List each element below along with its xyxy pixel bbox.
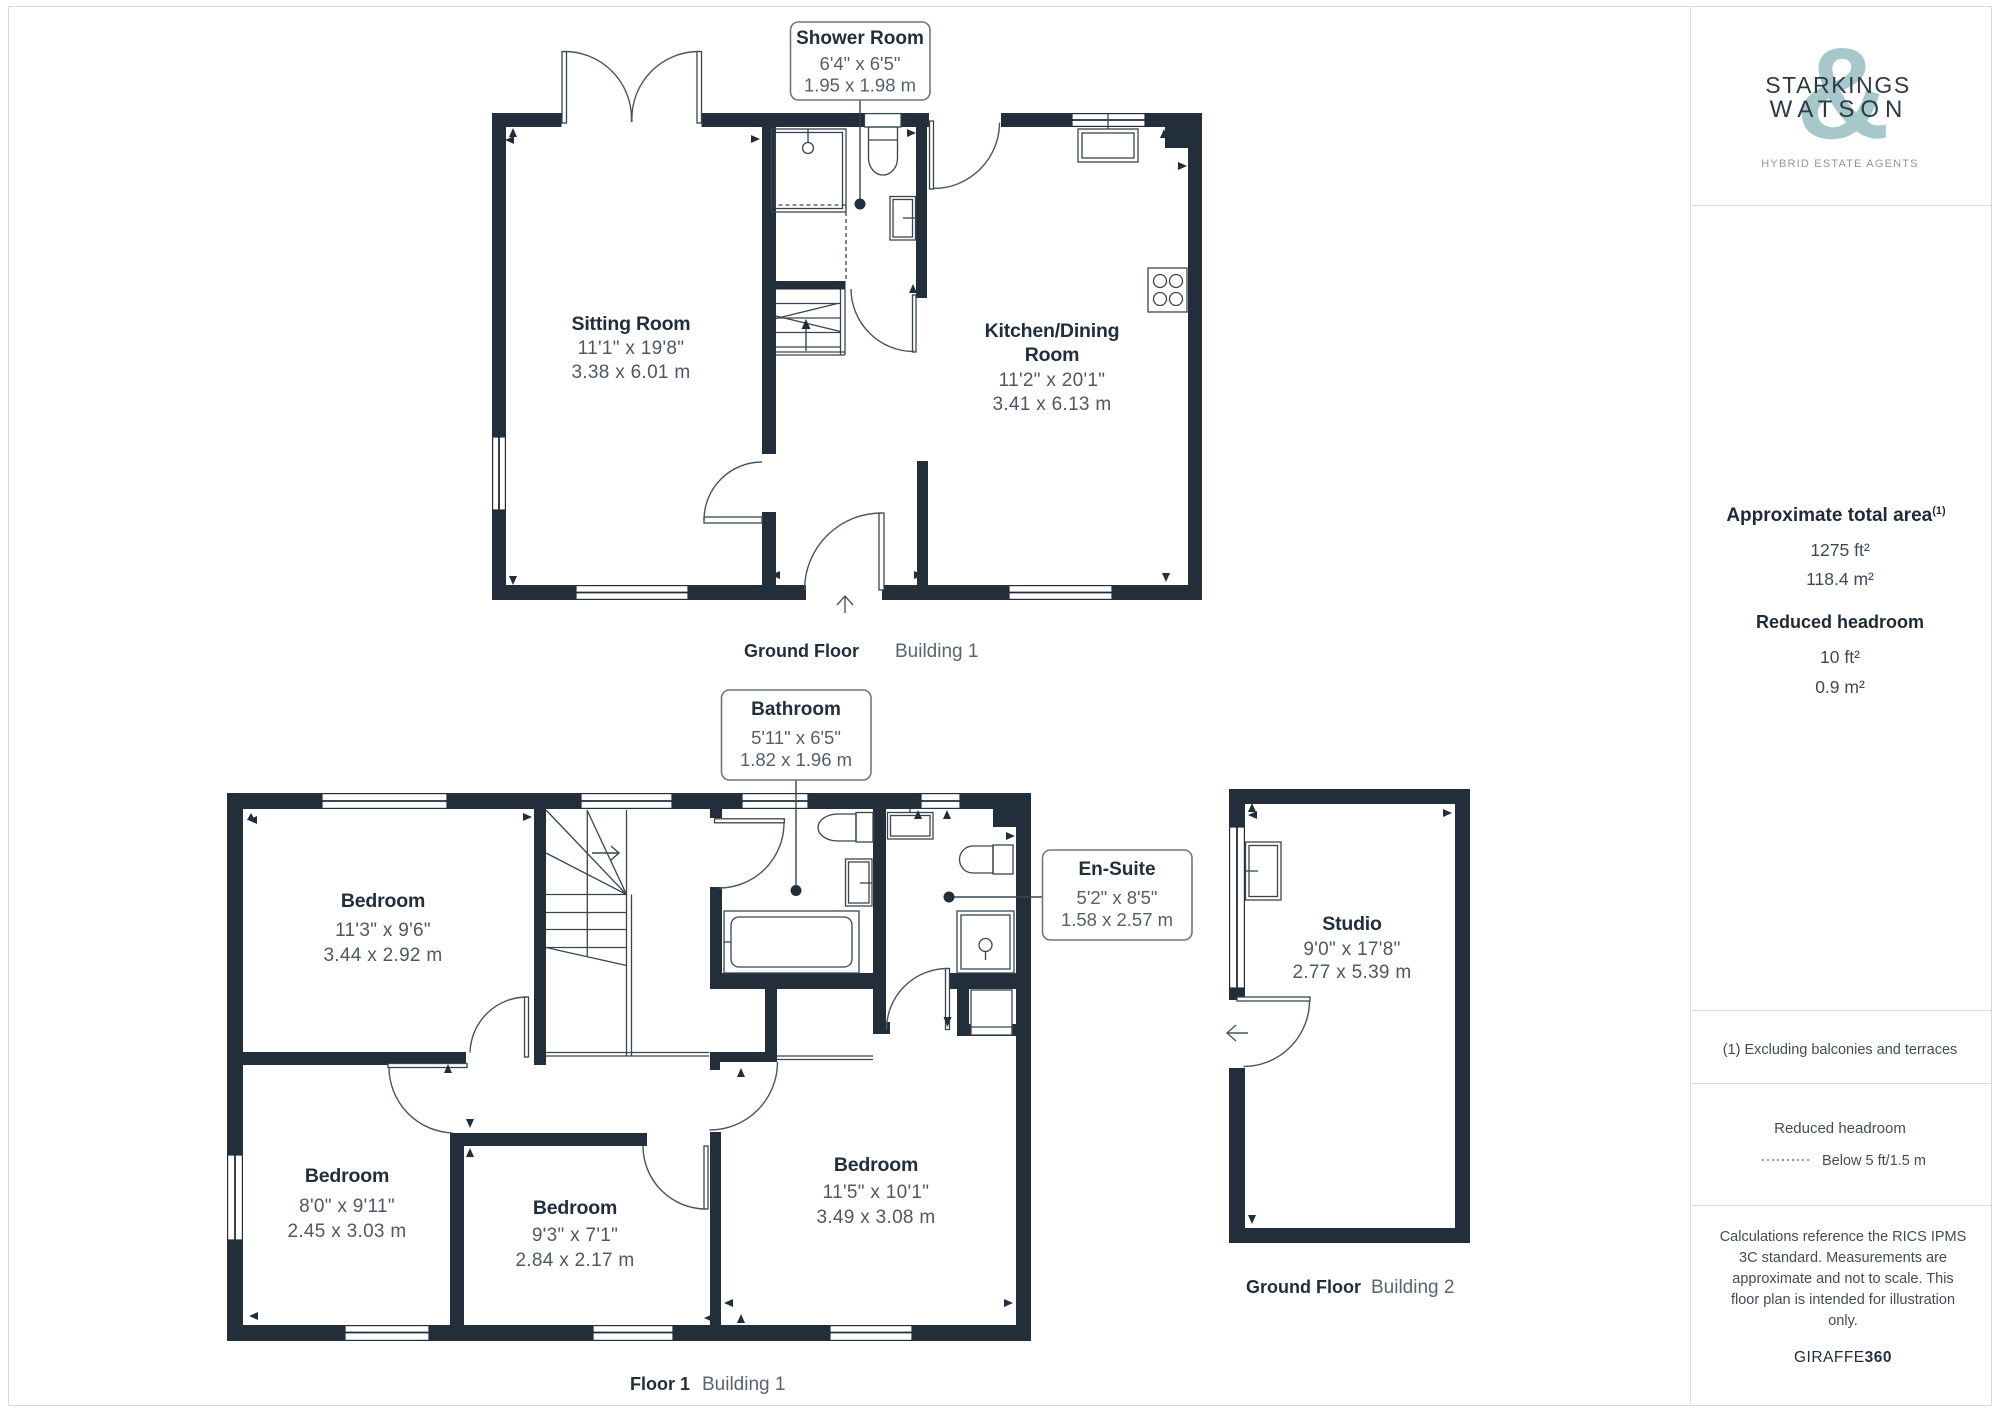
svg-text:Bathroom: Bathroom	[751, 699, 841, 720]
svg-text:Reduced headroom: Reduced headroom	[1756, 612, 1924, 632]
svg-text:3.49 x 3.08 m: 3.49 x 3.08 m	[816, 1207, 935, 1228]
svg-text:Approximate total area(1): Approximate total area(1)	[1726, 505, 1946, 526]
svg-text:2.84 x 2.17 m: 2.84 x 2.17 m	[515, 1250, 634, 1271]
svg-text:HYBRID ESTATE AGENTS: HYBRID ESTATE AGENTS	[1761, 158, 1918, 170]
svg-text:3.38 x 6.01 m: 3.38 x 6.01 m	[571, 362, 690, 383]
svg-text:Reduced headroom: Reduced headroom	[1774, 1120, 1906, 1137]
svg-text:11'3" x 9'6": 11'3" x 9'6"	[335, 920, 431, 941]
svg-text:10 ft²: 10 ft²	[1820, 647, 1860, 667]
svg-text:Bedroom: Bedroom	[533, 1197, 617, 1219]
svg-text:GIRAFFE360: GIRAFFE360	[1794, 1349, 1892, 1366]
svg-text:1.82 x 1.96 m: 1.82 x 1.96 m	[740, 749, 852, 770]
svg-text:0.9 m²: 0.9 m²	[1815, 677, 1865, 697]
svg-text:11'2" x 20'1": 11'2" x 20'1"	[999, 370, 1106, 391]
svg-text:En-Suite: En-Suite	[1078, 859, 1155, 880]
svg-text:118.4 m²: 118.4 m²	[1806, 569, 1874, 589]
svg-text:STARKINGS: STARKINGS	[1765, 72, 1911, 98]
svg-text:Building 1: Building 1	[702, 1374, 785, 1395]
svg-text:Floor 1: Floor 1	[630, 1374, 690, 1394]
svg-text:5'11" x 6'5": 5'11" x 6'5"	[751, 727, 841, 748]
svg-text:1275 ft²: 1275 ft²	[1810, 540, 1870, 560]
svg-text:1.95 x 1.98 m: 1.95 x 1.98 m	[804, 75, 916, 96]
svg-text:Kitchen/Dining: Kitchen/Dining	[985, 320, 1120, 342]
svg-text:floor plan is intended for ill: floor plan is intended for illustration	[1731, 1292, 1955, 1308]
svg-text:9'0" x 17'8": 9'0" x 17'8"	[1303, 939, 1400, 960]
svg-text:Bedroom: Bedroom	[305, 1165, 389, 1187]
svg-text:11'5" x 10'1": 11'5" x 10'1"	[823, 1182, 930, 1203]
svg-text:9'3" x 7'1": 9'3" x 7'1"	[532, 1225, 618, 1246]
svg-text:Building 2: Building 2	[1371, 1277, 1454, 1298]
svg-text:Calculations reference the RIC: Calculations reference the RICS IPMS	[1720, 1229, 1967, 1245]
svg-text:Bedroom: Bedroom	[834, 1154, 918, 1176]
svg-text:3C standard. Measurements are: 3C standard. Measurements are	[1739, 1250, 1947, 1266]
svg-text:3.41 x 6.13 m: 3.41 x 6.13 m	[992, 394, 1111, 415]
svg-text:1.58 x 2.57 m: 1.58 x 2.57 m	[1061, 909, 1173, 930]
svg-text:5'2" x 8'5": 5'2" x 8'5"	[1077, 887, 1158, 908]
svg-text:Studio: Studio	[1322, 913, 1382, 935]
svg-text:Sitting Room: Sitting Room	[572, 313, 691, 335]
svg-text:6'4" x 6'5": 6'4" x 6'5"	[820, 53, 901, 74]
svg-text:Ground Floor: Ground Floor	[744, 641, 859, 661]
svg-text:only.: only.	[1828, 1313, 1858, 1329]
svg-text:Ground Floor: Ground Floor	[1246, 1277, 1361, 1297]
svg-text:(1) Excluding balconies and te: (1) Excluding balconies and terraces	[1723, 1042, 1958, 1058]
svg-text:8'0" x 9'11": 8'0" x 9'11"	[299, 1196, 395, 1217]
svg-text:Room: Room	[1025, 344, 1079, 366]
svg-text:Below 5 ft/1.5 m: Below 5 ft/1.5 m	[1822, 1153, 1926, 1169]
svg-text:11'1" x 19'8": 11'1" x 19'8"	[578, 338, 685, 359]
svg-text:WATSON: WATSON	[1770, 96, 1909, 123]
svg-text:Bedroom: Bedroom	[341, 890, 425, 912]
svg-text:2.77 x 5.39 m: 2.77 x 5.39 m	[1292, 962, 1411, 983]
svg-text:3.44 x 2.92 m: 3.44 x 2.92 m	[323, 945, 442, 966]
svg-text:2.45 x 3.03 m: 2.45 x 3.03 m	[287, 1221, 406, 1242]
svg-text:approximate and not to scale.: approximate and not to scale. This	[1732, 1271, 1953, 1287]
svg-text:Building 1: Building 1	[895, 641, 978, 662]
svg-text:Shower Room: Shower Room	[796, 28, 924, 49]
